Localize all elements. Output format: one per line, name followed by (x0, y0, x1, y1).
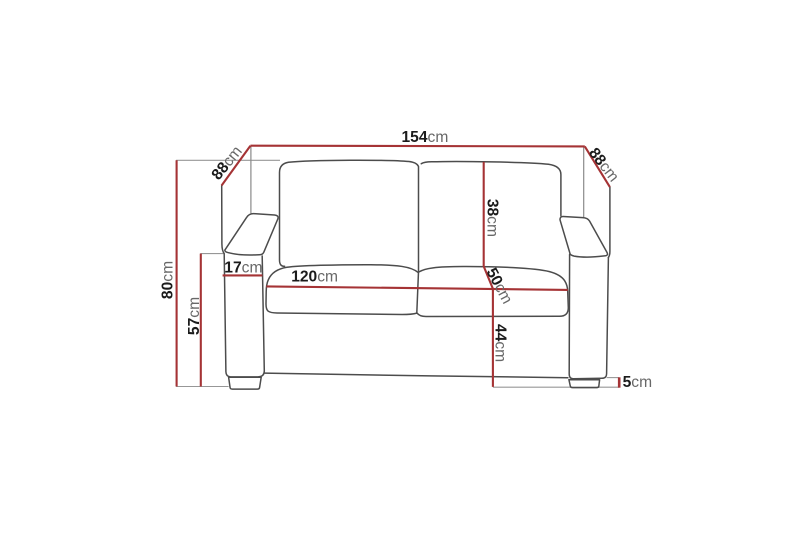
svg-text:38cm: 38cm (483, 199, 500, 237)
svg-text:5cm: 5cm (623, 374, 652, 391)
svg-text:44cm: 44cm (492, 324, 509, 362)
svg-text:17cm: 17cm (224, 260, 262, 277)
svg-text:50cm: 50cm (483, 265, 516, 307)
svg-text:57cm: 57cm (186, 297, 203, 335)
svg-text:88cm: 88cm (585, 145, 622, 186)
svg-text:154cm: 154cm (402, 129, 449, 146)
svg-text:120cm: 120cm (291, 269, 338, 286)
svg-text:80cm: 80cm (160, 261, 177, 299)
